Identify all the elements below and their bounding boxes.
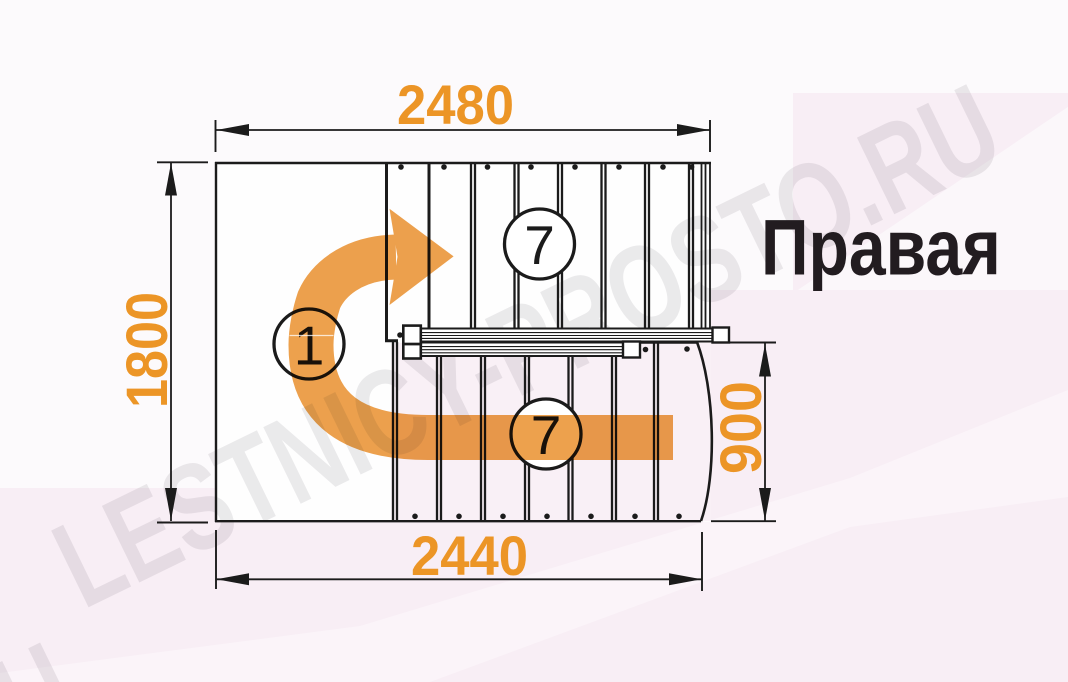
svg-text:7: 7 <box>524 214 555 276</box>
svg-text:2480: 2480 <box>397 74 514 137</box>
svg-text:900: 900 <box>710 381 774 474</box>
svg-text:2440: 2440 <box>411 525 528 588</box>
svg-text:Правая: Правая <box>761 204 1001 292</box>
svg-text:1800: 1800 <box>114 292 179 408</box>
